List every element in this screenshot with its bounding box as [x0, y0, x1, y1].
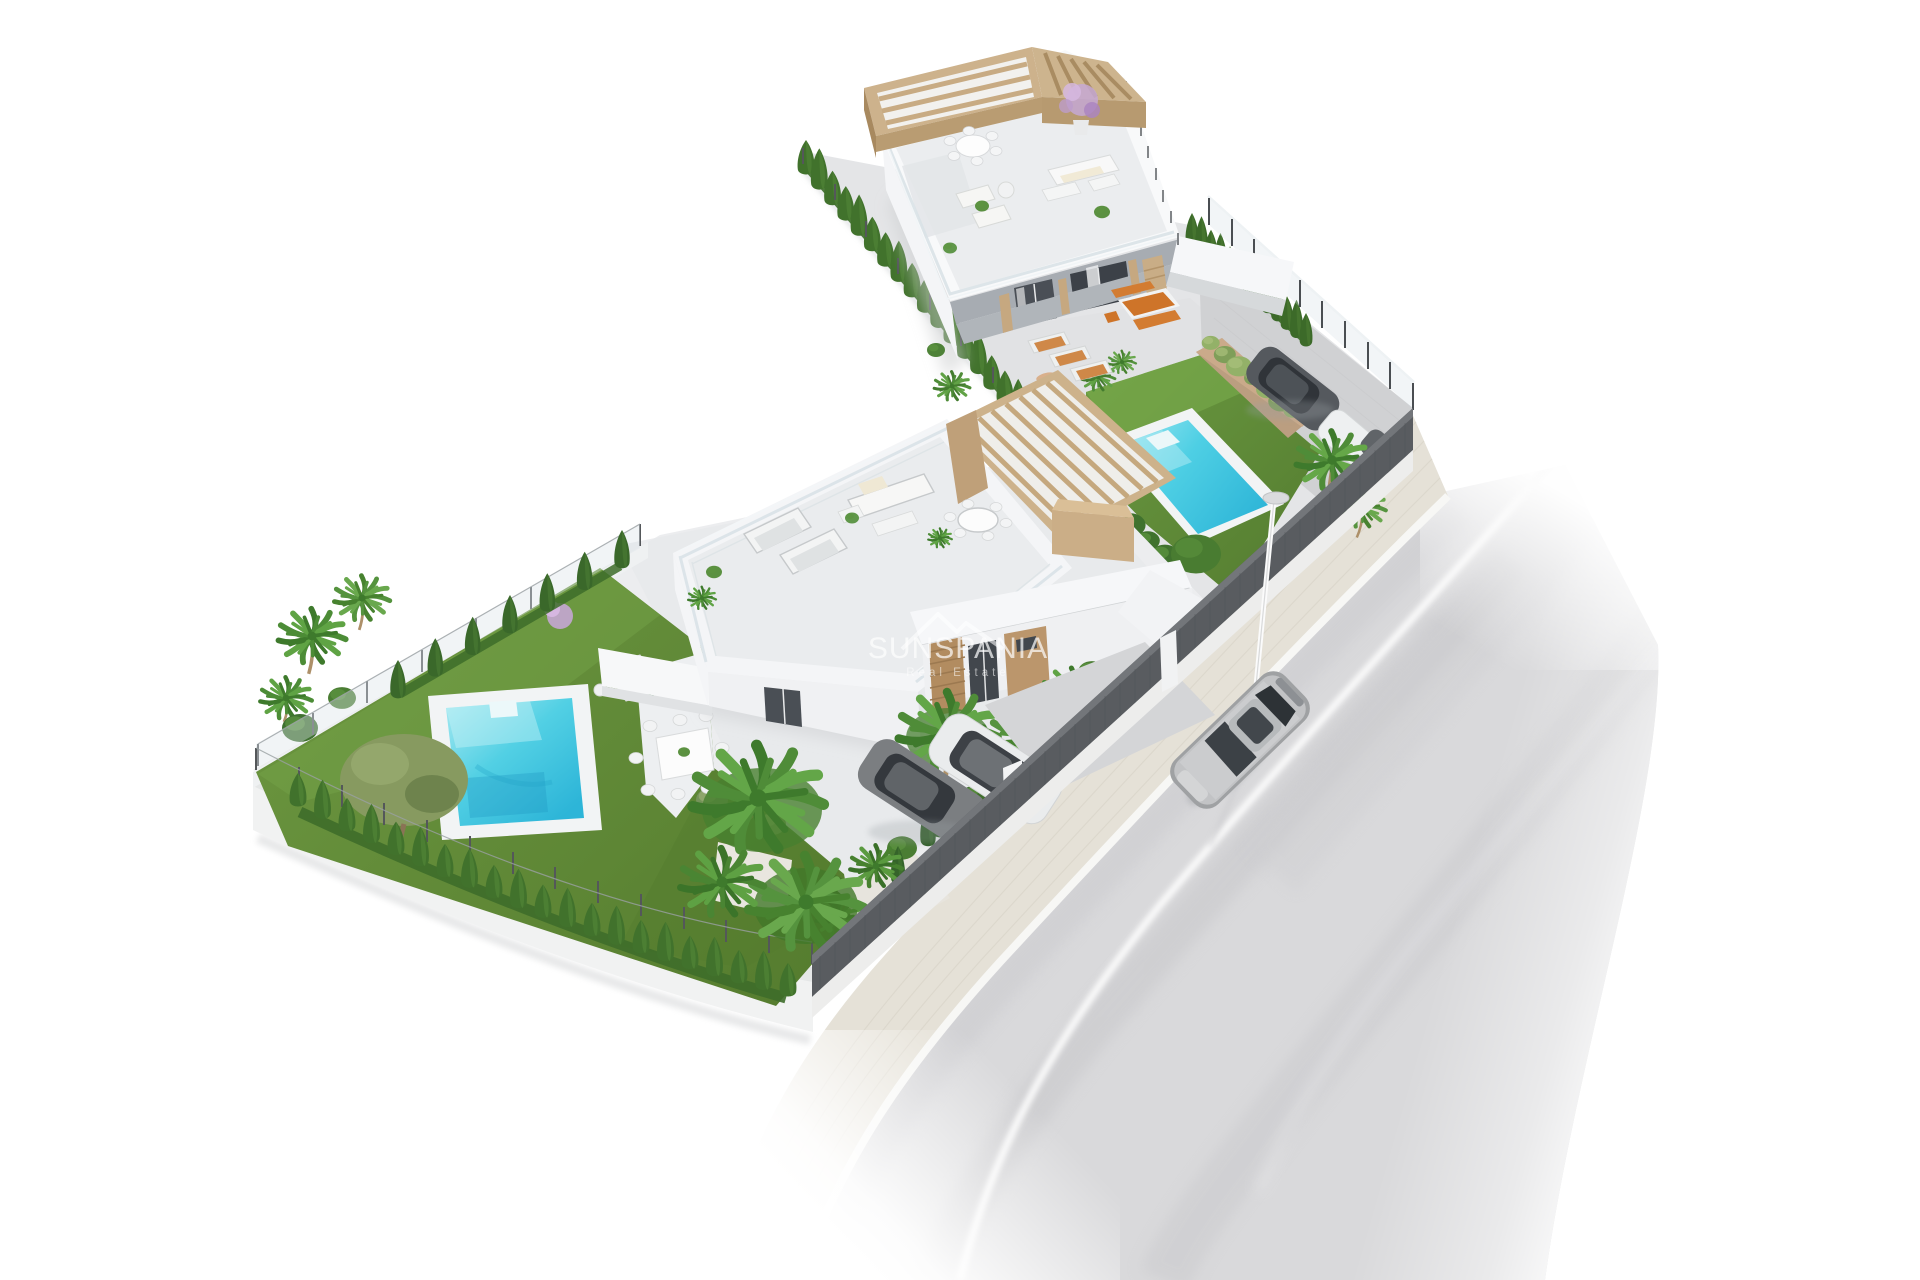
- svg-text:SUNSPANIA: SUNSPANIA: [868, 632, 1048, 665]
- svg-text:Real Estate: Real Estate: [906, 667, 1009, 679]
